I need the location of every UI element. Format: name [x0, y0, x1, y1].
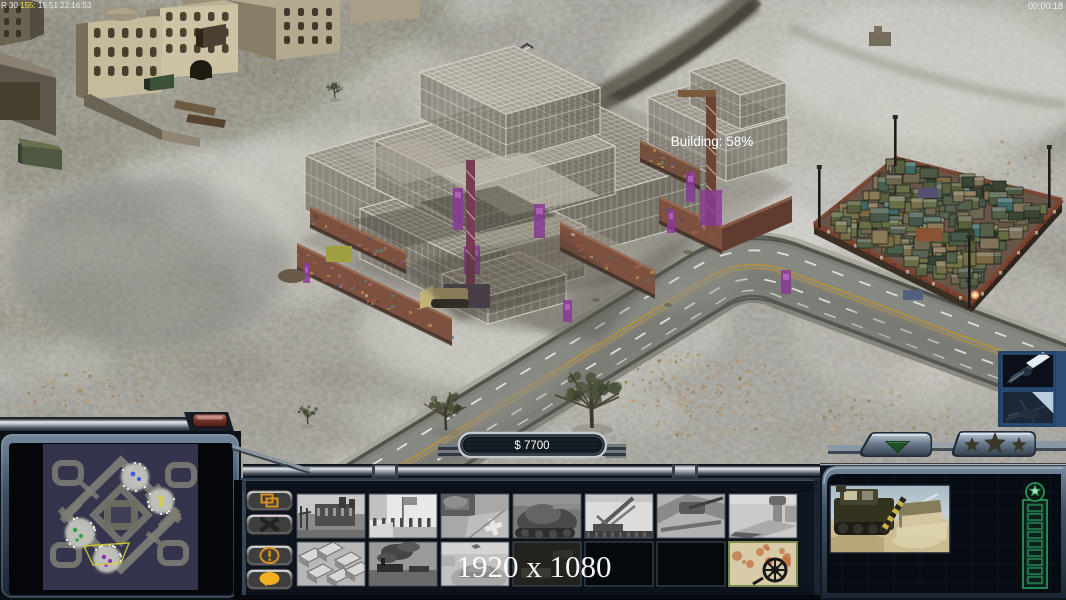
- svg-text:00:00:18: 00:00:18: [1028, 1, 1063, 11]
- svg-text:1920 x 1080: 1920 x 1080: [457, 549, 612, 584]
- svg-text:Building: 58%: Building: 58%: [671, 134, 754, 149]
- svg-text:$ 7700: $ 7700: [514, 440, 549, 452]
- svg-text:R 30 155: 16:51 22:16:53: R 30 155: 16:51 22:16:53: [1, 1, 92, 10]
